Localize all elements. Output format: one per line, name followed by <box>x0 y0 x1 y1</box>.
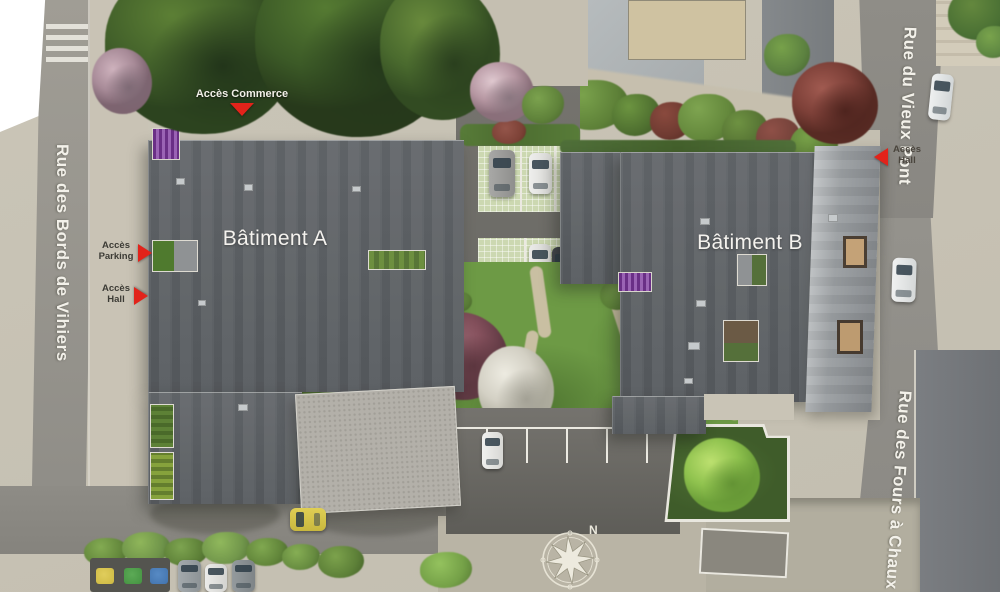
car-white-6 <box>891 258 917 303</box>
building-a-greenroof-strip <box>368 250 426 270</box>
access-hall-west-label: Accès Hall <box>98 284 134 306</box>
access-parking-label: Accès Parking <box>96 241 136 263</box>
stall-s5 <box>646 429 648 463</box>
access-hall-west-arrow-icon <box>134 287 148 305</box>
skylight-b5 <box>684 378 693 384</box>
access-hall-east-label: Accès Hall <box>890 145 924 167</box>
building-b-label: Bâtiment B <box>682 231 818 255</box>
bin-green <box>124 568 142 584</box>
access-commerce: Accès Commerce <box>194 88 290 116</box>
skylight-b2 <box>700 218 710 225</box>
stall-line-c2 <box>554 146 556 212</box>
bin-blue <box>150 568 168 584</box>
skylight-a2 <box>244 184 253 191</box>
building-a-hall-structure <box>152 240 198 272</box>
skylight-b4 <box>688 342 700 350</box>
ramp-outline <box>699 528 789 579</box>
building-b-dormer-2 <box>837 320 863 354</box>
access-commerce-arrow-icon <box>230 103 254 116</box>
building-b-dormer-1 <box>843 236 867 268</box>
skylight-a1 <box>176 178 185 185</box>
van-gray <box>489 150 515 197</box>
tree-bright-green <box>684 438 760 512</box>
building-a-label: Bâtiment A <box>205 227 345 251</box>
building-b-roof-low <box>612 396 706 434</box>
compass-rose-icon: N <box>530 520 610 592</box>
building-a-greenroof-1 <box>150 404 174 448</box>
walkway-b-south <box>704 394 794 420</box>
building-a-pergola-purple <box>152 128 180 160</box>
bin-yellow <box>96 568 114 584</box>
stall-s2 <box>526 429 528 463</box>
access-commerce-label: Accès Commerce <box>194 88 290 101</box>
skylight-a3 <box>352 186 361 192</box>
street-label-west: Rue des Bords de Vihiers <box>52 144 72 354</box>
neighbour-building-east <box>914 350 1000 592</box>
compass-north-label: N <box>589 523 598 537</box>
building-b-pergola-purple <box>618 272 652 292</box>
stall-s3 <box>566 429 568 463</box>
skylight-a4 <box>238 404 248 411</box>
site-plan: Bâtiment A Bâtiment B Rue des Bords de V… <box>0 0 1000 592</box>
car-gray-2 <box>232 560 255 592</box>
stall-s4 <box>606 429 608 463</box>
neighbour-court-north <box>628 0 746 60</box>
access-parking-arrow-icon <box>138 244 152 262</box>
skylight-b1 <box>828 214 838 222</box>
building-a-annex-roof <box>295 386 461 514</box>
building-b-roof-slope <box>805 146 880 412</box>
skylight-a5 <box>198 300 206 306</box>
tree-corner-northeast-2 <box>976 26 1000 58</box>
building-b-roof-west <box>560 152 622 284</box>
crosswalk <box>46 24 88 64</box>
compass-rose: N <box>530 520 610 592</box>
building-b-hall-2 <box>723 320 759 362</box>
car-yellow <box>290 508 326 531</box>
car-gray-1 <box>178 560 201 592</box>
tree-pink-northwest <box>92 48 152 114</box>
building-b-hall-1 <box>737 254 767 286</box>
skylight-b3 <box>696 300 706 307</box>
building-a-greenroof-2 <box>150 452 174 500</box>
access-hall-east-arrow-icon <box>874 148 888 166</box>
car-white-1 <box>529 153 552 194</box>
car-white-4 <box>205 564 227 592</box>
stall-line-c1 <box>520 146 522 212</box>
tree-red-east <box>792 62 878 144</box>
car-white-3 <box>482 432 503 469</box>
